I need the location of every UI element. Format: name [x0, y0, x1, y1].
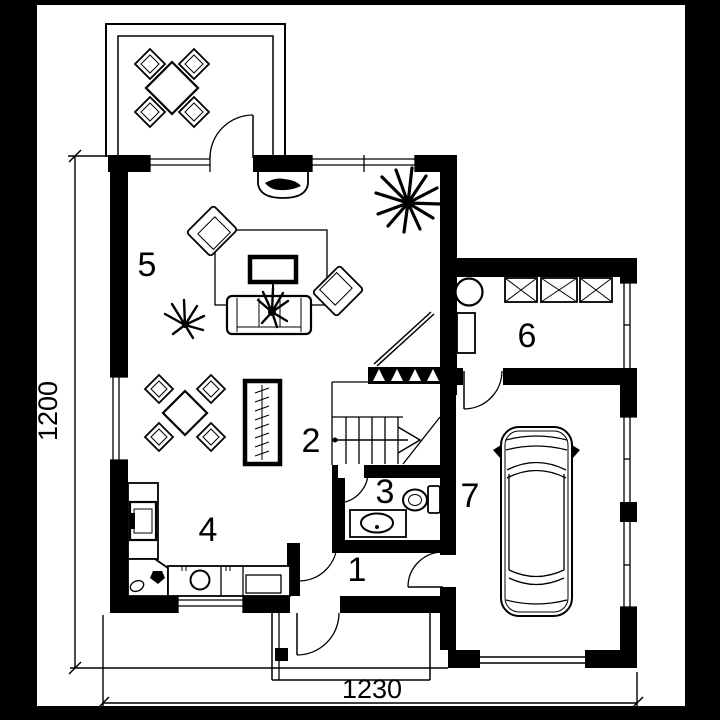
dimension-height-label: 1200	[33, 381, 63, 441]
dimension-width-label: 1230	[342, 674, 402, 704]
wardrobe-crossed-box	[541, 278, 577, 302]
fireplace	[258, 172, 308, 198]
room-label-6: 6	[518, 317, 537, 355]
wall-room6-bottom	[440, 368, 463, 385]
floor-plan-screenshot: 1200 1230 1 2 3 4 5 6 7	[0, 0, 720, 720]
toilet-tank	[428, 486, 440, 513]
radiator	[245, 381, 280, 464]
drain	[375, 525, 379, 529]
wall-garage-stub-left	[448, 650, 480, 668]
room-label-2: 2	[302, 422, 321, 460]
room-label-7: 7	[461, 477, 480, 515]
room-label-3: 3	[376, 473, 395, 511]
wall-garage-stub-right	[585, 650, 637, 668]
room-label-1: 1	[348, 551, 367, 589]
stove-handle	[131, 513, 135, 529]
wall-hall-right-lower	[440, 587, 456, 650]
wall-room6-bottom	[503, 368, 637, 385]
wall-left-lower	[110, 460, 128, 613]
wall-right	[620, 502, 637, 522]
room-label-5: 5	[138, 246, 157, 284]
wall-bottom-hall	[340, 596, 456, 613]
boiler	[456, 279, 483, 306]
terrace-table-set	[135, 49, 209, 127]
floor-plan-canvas: 1200 1230 1 2 3 4 5 6 7	[0, 0, 720, 720]
wall-bottom-mid	[243, 596, 290, 613]
wall-bottom-left	[110, 596, 178, 613]
porch-post	[275, 648, 288, 661]
wardrobe-crossed-box	[505, 278, 537, 302]
wardrobe-crossed-box	[580, 278, 612, 302]
cabinet	[457, 313, 475, 353]
wall-room6-top	[440, 258, 637, 277]
wall-left-upper	[110, 168, 128, 377]
wall-segment	[253, 155, 312, 172]
room-label-4: 4	[199, 511, 218, 549]
coffee-table	[250, 257, 296, 282]
wall-right	[620, 272, 637, 283]
